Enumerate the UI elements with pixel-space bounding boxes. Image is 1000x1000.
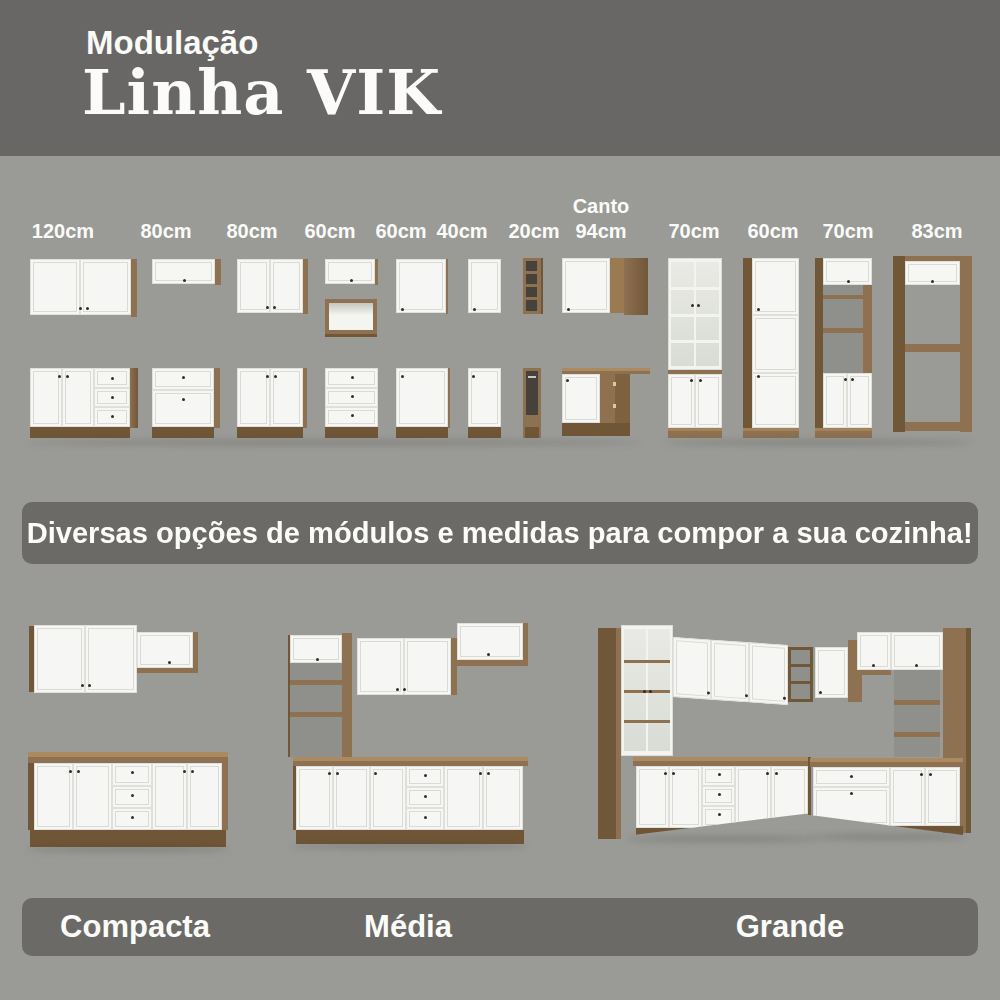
module-label-canto-line2: 94cm	[575, 220, 626, 242]
wall-niche-60cm	[325, 299, 377, 337]
wall-cabinet-60cm-short	[325, 259, 378, 285]
wall-cabinet-80cm	[237, 259, 308, 314]
base-cabinet-80cm-drawer	[152, 368, 220, 438]
wall-cabinet-120cm	[30, 259, 137, 317]
wall-cabinet-corner-94cm	[562, 258, 648, 315]
module-label-canto-94cm: Canto 94cm	[573, 194, 630, 244]
module-label-120cm: 120cm	[32, 220, 94, 243]
size-label-compacta: Compacta	[60, 898, 210, 956]
size-banner: Compacta Média Grande	[22, 898, 978, 956]
module-label-83cm: 83cm	[911, 220, 962, 243]
wall-cabinet-60cm	[396, 259, 448, 314]
wall-cabinet-40cm	[468, 259, 502, 314]
module-label-60cm-a: 60cm	[304, 220, 355, 243]
module-label-20cm: 20cm	[508, 220, 559, 243]
module-label-60cm-c: 60cm	[747, 220, 798, 243]
middle-banner: Diversas opções de módulos e medidas par…	[22, 502, 978, 564]
base-cabinet-corner-94cm	[562, 368, 650, 438]
wall-cabinet-80cm-short	[152, 259, 221, 286]
module-label-70cm-a: 70cm	[668, 220, 719, 243]
base-cabinet-60cm-drawers	[325, 368, 378, 438]
wall-shelf-20cm	[523, 258, 543, 314]
product-image: Modulação Linha VIK 120cm 80cm 80cm 60cm…	[0, 0, 1000, 1000]
module-label-40cm: 40cm	[436, 220, 487, 243]
module-label-canto-line1: Canto	[573, 195, 630, 217]
module-label-60cm-b: 60cm	[375, 220, 426, 243]
page-title: Linha VIK	[82, 56, 441, 129]
header-band: Modulação Linha VIK	[0, 0, 1000, 156]
base-cabinet-60cm	[396, 368, 450, 438]
module-label-70cm-b: 70cm	[822, 220, 873, 243]
tall-cabinet-60cm	[743, 258, 799, 438]
tall-cabinet-glass-70cm	[668, 258, 722, 438]
kitchen-grande	[596, 620, 974, 852]
base-cabinet-40cm	[468, 368, 502, 438]
size-label-media: Média	[364, 898, 452, 956]
base-shelf-20cm	[523, 368, 541, 438]
module-label-80cm-b: 80cm	[226, 220, 277, 243]
base-cabinet-80cm	[237, 368, 307, 438]
base-cabinet-120cm	[30, 368, 138, 438]
tall-cabinet-oven-70cm	[815, 258, 872, 438]
kitchen-media	[286, 620, 530, 852]
module-label-80cm-a: 80cm	[140, 220, 191, 243]
size-label-grande: Grande	[736, 898, 845, 956]
tall-frame-83cm	[893, 256, 972, 434]
middle-banner-text: Diversas opções de módulos e medidas par…	[27, 516, 973, 550]
kitchen-compacta	[26, 620, 232, 852]
